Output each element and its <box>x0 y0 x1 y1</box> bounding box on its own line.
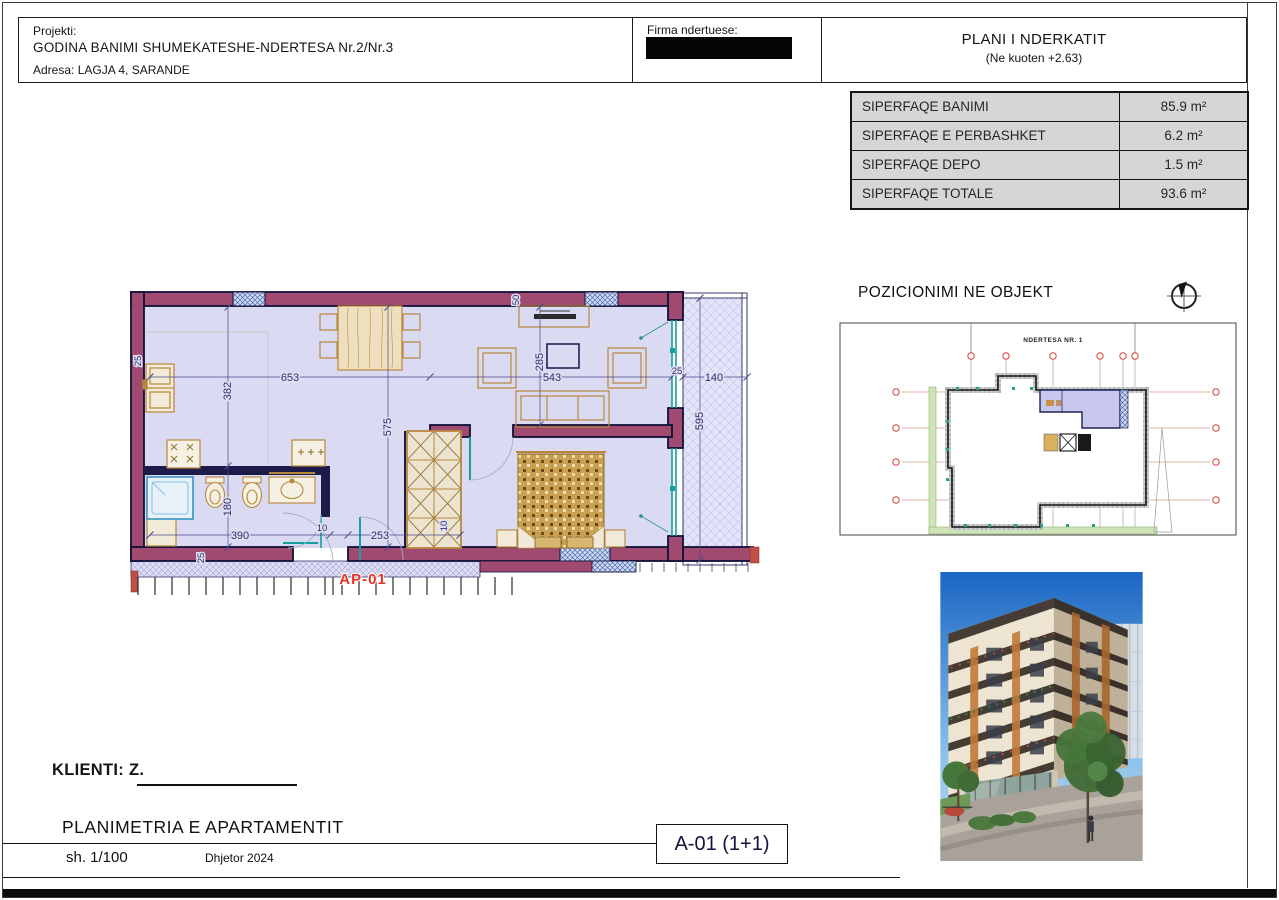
site-plan-drawing: NDERTESA NR. 1 <box>838 322 1238 537</box>
table-row: SIPERFAQE E PERBASHKET 6.2 m² <box>852 122 1247 151</box>
site-plan-heading: POZICIONIMI NE OBJEKT <box>858 284 1053 302</box>
dim-label: 50 <box>511 295 522 306</box>
drawing-title: PLANIMETRIA E APARTAMENTIT <box>62 817 343 838</box>
plan-title-cell: PLANI I NDERKATIT (Ne kuoten +2.63) <box>822 18 1246 82</box>
bidet <box>243 477 262 508</box>
project-name: GODINA BANIMI SHUMEKATESHE-NDERTESA Nr.2… <box>33 40 620 55</box>
title-block: Projekti: GODINA BANIMI SHUMEKATESHE-NDE… <box>18 17 1247 83</box>
bottom-edge-band <box>3 889 1276 897</box>
area-table: SIPERFAQE BANIMI 85.9 m² SIPERFAQE E PER… <box>850 91 1249 210</box>
firm-cell: Firma ndertuese: <box>633 18 822 82</box>
dim-label: 382 <box>222 382 234 400</box>
sheet-code: A-01 (1+1) <box>674 833 769 856</box>
nightstand <box>497 530 517 547</box>
green-strip <box>929 387 936 533</box>
dim-label: 25 <box>196 553 207 564</box>
footer-rule-bottom <box>3 877 900 878</box>
plan-subtitle: (Ne kuoten +2.63) <box>822 51 1246 65</box>
project-address: Adresa: LAGJA 4, SARANDE <box>33 63 620 77</box>
building-render <box>940 572 1143 861</box>
dim-label: 140 <box>705 372 723 384</box>
footer-rule-top <box>3 843 656 844</box>
floor-plan-drawing: 653 543 25 140 382 180 575 285 595 390 1… <box>125 285 770 597</box>
bed <box>518 454 604 548</box>
area-row-value: 6.2 m² <box>1120 122 1247 150</box>
firm-logo <box>646 37 792 59</box>
table-row: SIPERFAQE BANIMI 85.9 m² <box>852 93 1247 122</box>
dim-label: 10 <box>439 521 450 532</box>
dim-label: 180 <box>222 498 234 516</box>
client-signature-line <box>137 784 297 786</box>
dim-label: 595 <box>694 412 706 430</box>
corridor-ticks <box>138 577 512 595</box>
area-row-label: SIPERFAQE DEPO <box>852 151 1120 179</box>
area-row-value: 1.5 m² <box>1120 151 1247 179</box>
dim-label: 575 <box>382 418 394 436</box>
table-row: SIPERFAQE DEPO 1.5 m² <box>852 151 1247 180</box>
nightstand <box>605 530 625 547</box>
dim-label: 285 <box>534 353 546 371</box>
firm-label: Firma ndertuese: <box>647 23 821 37</box>
dim-label: 390 <box>231 530 249 542</box>
area-row-value: 93.6 m² <box>1120 180 1247 208</box>
area-row-label: SIPERFAQE E PERBASHKET <box>852 122 1120 150</box>
client-label: KLIENTI: Z. <box>52 761 144 780</box>
dim-label: 25 <box>672 366 683 377</box>
dim-label: 253 <box>371 530 389 542</box>
area-row-value: 85.9 m² <box>1120 93 1247 121</box>
area-row-label: SIPERFAQE TOTALE <box>852 180 1120 208</box>
plan-title: PLANI I NDERKATIT <box>822 31 1246 48</box>
scale-label: sh. 1/100 <box>66 849 128 866</box>
dim-label: 543 <box>543 372 561 384</box>
area-row-label: SIPERFAQE BANIMI <box>852 93 1120 121</box>
building-core <box>1044 434 1091 451</box>
unit-label: AP-01 <box>339 571 387 588</box>
bedroom-ticks <box>640 563 748 572</box>
project-label: Projekti: <box>33 24 620 38</box>
closet <box>407 431 461 548</box>
drawing-sheet: Projekti: GODINA BANIMI SHUMEKATESHE-NDE… <box>0 0 1279 900</box>
dim-label: 25 <box>133 356 144 367</box>
dim-label: 653 <box>281 372 299 384</box>
sink <box>269 473 315 503</box>
north-compass-icon <box>1165 279 1203 315</box>
date-label: Dhjetor 2024 <box>205 851 274 865</box>
site-building-label: NDERTESA NR. 1 <box>1023 337 1083 344</box>
project-cell: Projekti: GODINA BANIMI SHUMEKATESHE-NDE… <box>19 18 633 82</box>
table-row: SIPERFAQE TOTALE 93.6 m² <box>852 180 1247 208</box>
sheet-code-box: A-01 (1+1) <box>656 824 788 864</box>
dim-label: 10 <box>317 523 328 534</box>
